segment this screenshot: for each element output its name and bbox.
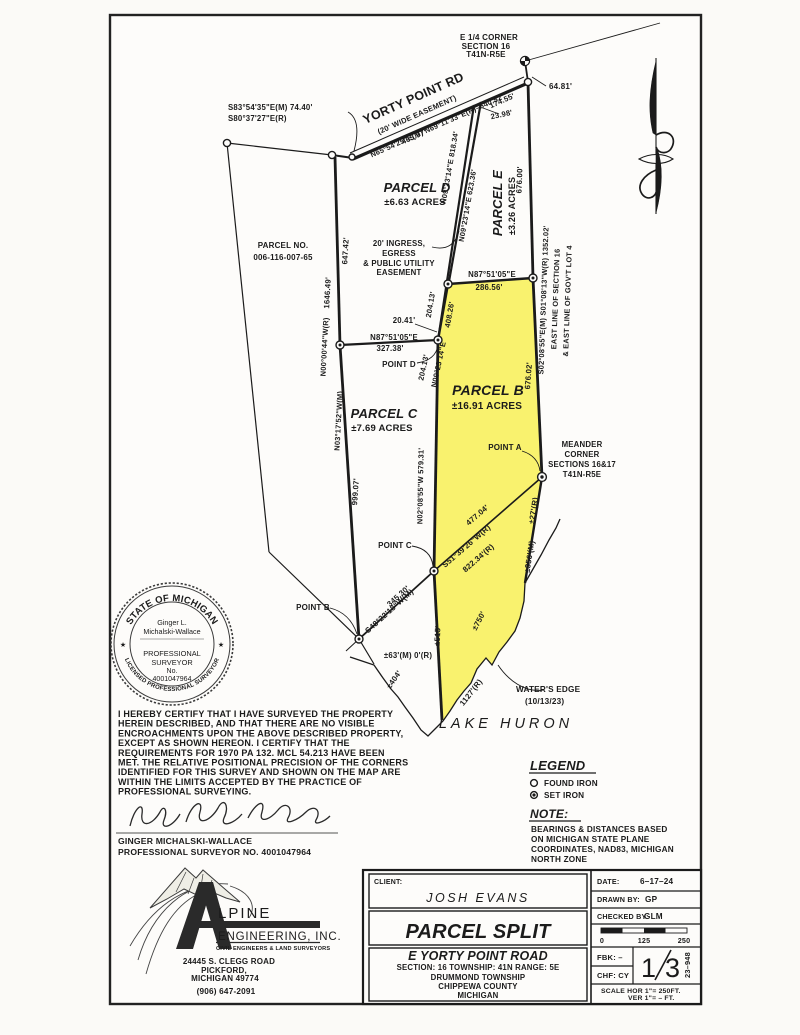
firm-name-line2: ENGINEERING, INC. — [218, 931, 342, 943]
easement-note-line1: 20' INGRESS, — [373, 239, 425, 248]
waters-edge-label: WATER'S EDGE — [516, 685, 581, 694]
legend-set-iron: SET IRON — [544, 791, 584, 800]
easement-note-line3: & PUBLIC UTILITY — [363, 259, 435, 268]
adjacent-parcel-line2: 006-116-007-65 — [253, 253, 313, 262]
legend-found-iron: FOUND IRON — [544, 779, 598, 788]
firm-addr-3: MICHIGAN 49774 — [191, 974, 259, 983]
firm-phone: (906) 647-2091 — [197, 987, 256, 996]
firm-name-line3: CIVIL ENGINEERS & LAND SURVEYORS — [216, 946, 330, 952]
easement-note-line2: EGRESS — [382, 249, 416, 258]
surveyor-number: PROFESSIONAL SURVEYOR NO. 4001047964 — [118, 847, 311, 857]
seal-name-line2: Michalski-Wallace — [143, 627, 200, 636]
tie-bearing-measured: S83°54'35"E(M) 74.40' — [228, 103, 313, 112]
scale-note-2: VER 1"= – FT. — [628, 995, 674, 1002]
date-value: 6–17–24 — [640, 877, 674, 886]
parcel-e-name: PARCEL E — [490, 170, 505, 236]
drawn-by-value: GP — [645, 895, 658, 904]
parcel-c-acres: ±7.69 ACRES — [351, 423, 412, 434]
location-township: DRUMMOND TOWNSHIP — [431, 973, 526, 982]
meander-line2: CORNER — [565, 450, 600, 459]
location-state: MICHIGAN — [457, 991, 498, 1000]
scale-tick-250: 250 — [678, 936, 691, 945]
cert-line-6: MET. THE RELATIVE POSITIONAL PRECISION O… — [118, 758, 408, 768]
dim-n0208-579: N02°08'55"W 579.31' — [415, 448, 425, 525]
date-label: DATE: — [597, 877, 619, 886]
note-line-3: COORDINATES, NAD83, MICHIGAN — [531, 845, 674, 854]
dim-n87-bearing: N87°51'05"E — [370, 333, 418, 342]
survey-plat-page: E 1/4 CORNER SECTION 16 T41N-R5E 64.81' … — [0, 0, 800, 1035]
note-title: NOTE: — [530, 807, 568, 821]
client-name: JOSH EVANS — [425, 891, 530, 905]
dim-286-56: 286.56' — [475, 283, 502, 292]
cert-line-8: WITHIN THE LIMITS ACCEPTED BY THE PRACTI… — [118, 777, 362, 787]
note-line-2: ON MICHIGAN STATE PLANE — [531, 835, 650, 844]
firm-addr-1: 24445 S. CLEGG ROAD — [183, 957, 275, 966]
dim-676-02: 676.02' — [523, 362, 534, 390]
corner-note-line1: E 1/4 CORNER — [460, 33, 518, 42]
chf-value: CHF: CY — [597, 971, 629, 980]
sheet-number: 1 3 23–948 — [641, 950, 692, 983]
scale-tick-0: 0 — [600, 936, 604, 945]
note-line-1: BEARINGS & DISTANCES BASED — [531, 825, 668, 834]
waters-edge-date: (10/13/23) — [525, 697, 564, 706]
point-b-label: POINT B — [296, 603, 330, 612]
dim-327-38: 327.38' — [376, 344, 403, 353]
seal-line6: 4001047964 — [153, 676, 192, 683]
job-number: 23–948 — [683, 952, 692, 978]
parcel-b-name: PARCEL B — [452, 382, 524, 398]
meander-line3: SECTIONS 16&17 — [548, 460, 616, 469]
point-a-label: POINT A — [488, 443, 522, 452]
seal-line5: No. — [167, 668, 178, 675]
sheet-num: 1 — [641, 953, 656, 983]
sheet-total: 3 — [665, 953, 680, 983]
dim-999-07: 999.07' — [350, 478, 361, 506]
cert-line-3: ENCROACHMENTS UPON THE ABOVE DESCRIBED P… — [118, 728, 403, 738]
legend-title: LEGEND — [530, 758, 586, 773]
cert-line-7: IDENTIFIED FOR THIS SURVEY AND SHOWN ON … — [118, 767, 401, 777]
parcel-b-acres: ±16.91 ACRES — [452, 401, 522, 412]
meander-line4: T41N-R5E — [563, 470, 601, 479]
checked-by-label: CHECKED BY: — [597, 912, 649, 921]
cert-line-9: PROFESSIONAL SURVEYING. — [118, 787, 251, 797]
drawn-by-label: DRAWN BY: — [597, 895, 640, 904]
scale-note-1: SCALE HOR 1"= 250FT. — [601, 988, 681, 995]
dim-515: ±515' — [432, 626, 442, 647]
location-road: E YORTY POINT ROAD — [408, 949, 548, 963]
scale-tick-125: 125 — [638, 936, 651, 945]
dim-647-42: 647.42' — [340, 237, 350, 265]
set-iron-symbol-dot — [532, 793, 535, 796]
parcel-e-acres: ±3.26 ACRES — [507, 177, 517, 235]
seal-line3: PROFESSIONAL — [143, 649, 201, 658]
cert-line-2: HEREIN DESCRIBED, AND THAT THERE ARE NO … — [118, 719, 375, 729]
corner-note-line3: T41N-R5E — [466, 50, 506, 59]
checked-by-value: GLM — [644, 912, 663, 921]
location-strs: SECTION: 16 TOWNSHIP: 41N RANGE: 5E — [397, 963, 560, 972]
dim-20-41: 20.41' — [393, 316, 416, 325]
seal-star-left: ★ — [120, 641, 126, 649]
seal-star-right: ★ — [218, 641, 224, 649]
cert-line-1: I HEREBY CERTIFY THAT I HAVE SURVEYED TH… — [118, 709, 393, 719]
adjacent-parcel-line1: PARCEL NO. — [258, 241, 309, 250]
dim-1646-49: 1646.49' — [322, 277, 333, 309]
dim-n87-286-bearing: N87°51'05"E — [468, 270, 516, 279]
parcel-d-acres: ±6.63 ACRES — [384, 197, 445, 208]
survey-drawing: E 1/4 CORNER SECTION 16 T41N-R5E 64.81' … — [0, 0, 800, 1035]
seal-line4: SURVEYOR — [151, 658, 192, 667]
seal-name-line1: Ginger L. — [157, 618, 187, 627]
point-c-label: POINT C — [378, 541, 412, 550]
drawing-title: PARCEL SPLIT — [405, 921, 552, 943]
point-d-label: POINT D — [382, 360, 416, 369]
fbk-value: FBK: – — [597, 953, 623, 962]
note-line-4: NORTH ZONE — [531, 855, 587, 864]
lake-huron-label: LAKE HURON — [439, 716, 573, 732]
dim-64-81: 64.81' — [549, 82, 572, 91]
cert-line-4: EXCEPT AS SHOWN HEREON. I CERTIFY THAT T… — [118, 738, 350, 748]
quarter-corner-symbol — [520, 56, 529, 65]
surveyor-name: GINGER MICHALSKI-WALLACE — [118, 836, 252, 846]
firm-name-rest: LPINE — [218, 905, 271, 922]
easement-note-line4: EASEMENT — [377, 268, 422, 277]
parcel-c-name: PARCEL C — [351, 406, 418, 421]
meander-line1: MEANDER — [562, 440, 603, 449]
cert-line-5: REQUIREMENTS FOR 1970 PA 132. MCL 54.213… — [118, 748, 385, 758]
tie-bearing-record: S80°37'27"E(R) — [228, 114, 287, 123]
client-label: CLIENT: — [374, 879, 402, 886]
location-county: CHIPPEWA COUNTY — [438, 982, 518, 991]
title-block: CLIENT: JOSH EVANS PARCEL SPLIT E YORTY … — [363, 870, 701, 1004]
dim-63m: ±63'(M) 0'(R) — [384, 651, 432, 660]
